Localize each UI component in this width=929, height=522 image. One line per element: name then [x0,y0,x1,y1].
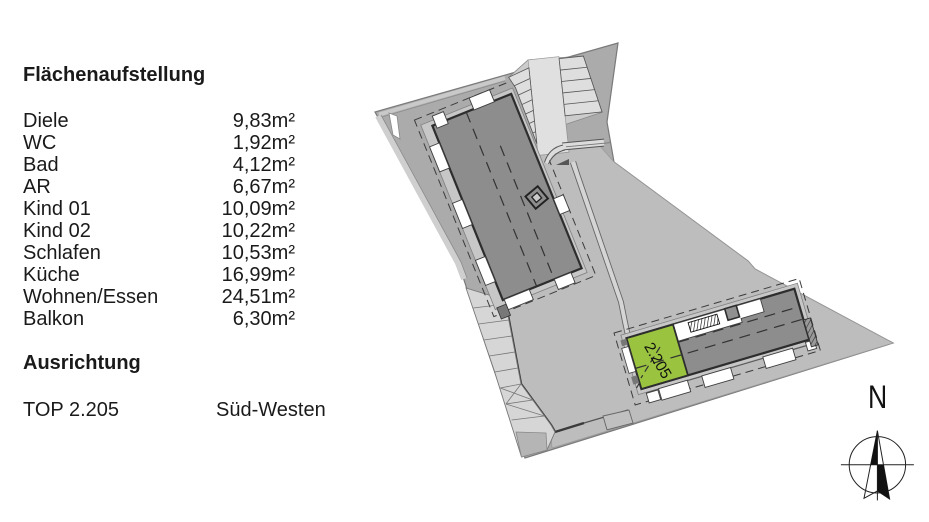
svg-text:N: N [868,380,887,416]
